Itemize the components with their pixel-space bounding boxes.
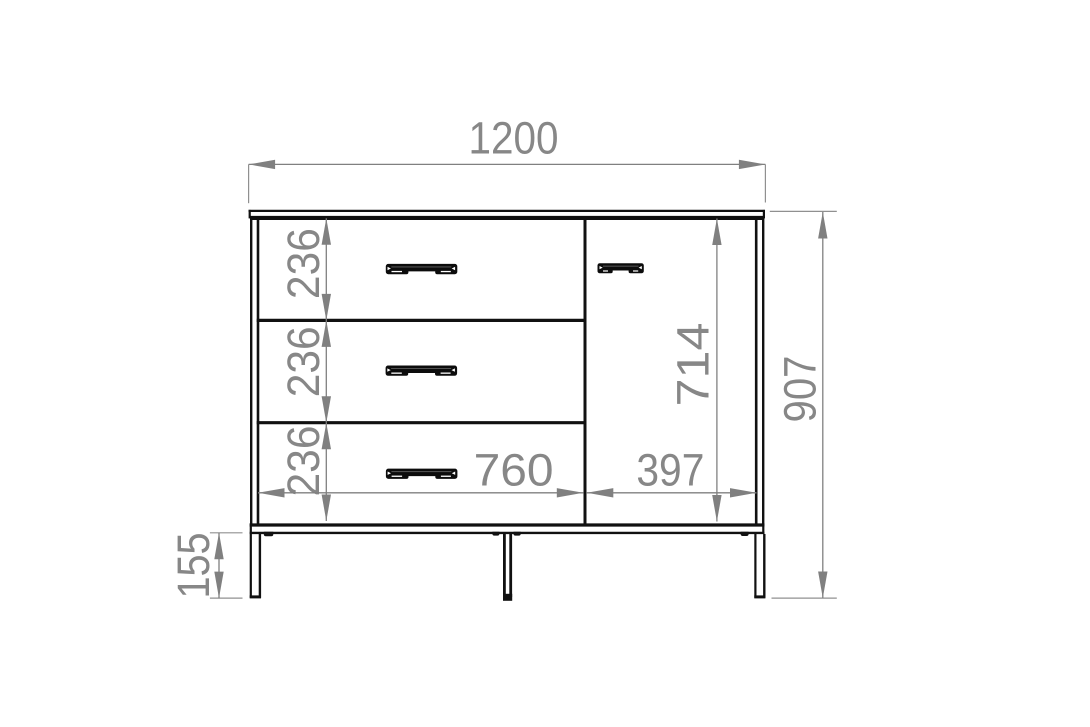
svg-text:907: 907 [775, 356, 826, 423]
svg-text:760: 760 [474, 444, 554, 495]
svg-text:714: 714 [667, 323, 718, 407]
svg-text:236: 236 [278, 426, 329, 497]
svg-text:1200: 1200 [469, 112, 559, 163]
svg-text:236: 236 [278, 228, 329, 299]
svg-text:155: 155 [168, 533, 219, 599]
svg-text:397: 397 [636, 445, 704, 496]
svg-text:236: 236 [278, 326, 329, 397]
